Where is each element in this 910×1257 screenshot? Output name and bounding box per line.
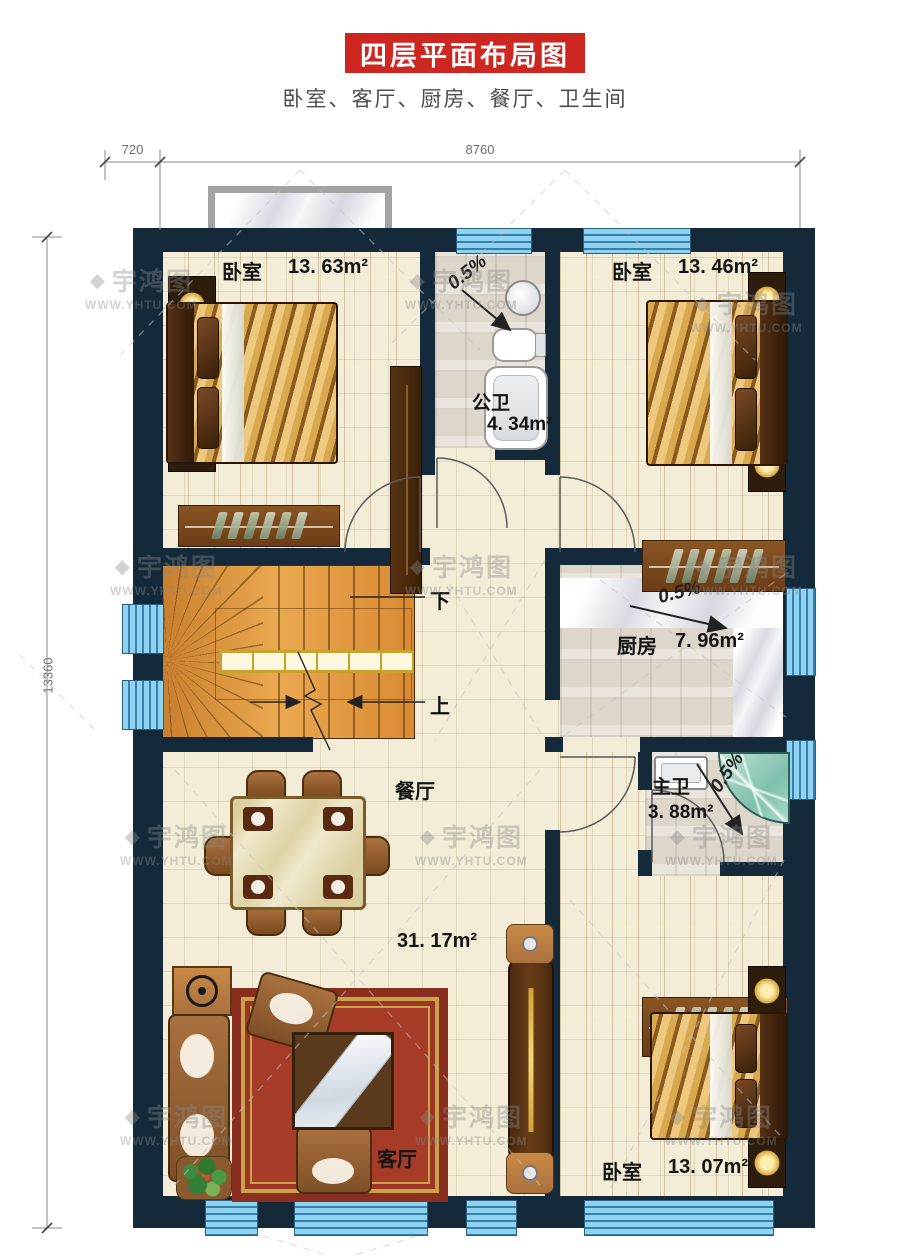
annotation-overlay: [0, 0, 910, 1257]
label-kitchen: 厨房 7. 96m²: [617, 630, 744, 659]
label-bedroom-top-left: 卧室 13. 63m²: [222, 256, 368, 285]
room-name: 公卫: [472, 388, 510, 415]
fold-dash-lines: [20, 170, 790, 1256]
stair-up-label: 上: [430, 690, 450, 719]
room-area: 3. 88m²: [648, 802, 713, 824]
room-name: 厨房: [617, 630, 657, 659]
room-area: 7. 96m²: [675, 630, 744, 659]
label-bedroom-bottom-right: 卧室 13. 07m²: [602, 1156, 748, 1185]
room-area: 4. 34m²: [487, 414, 552, 436]
room-area: 13. 07m²: [668, 1156, 748, 1185]
dimension-ticks: [42, 157, 805, 1233]
room-area: 31. 17m²: [397, 930, 477, 953]
slope-arrows: [462, 290, 742, 834]
room-name: 餐厅: [395, 775, 435, 804]
room-area: 13. 46m²: [678, 256, 758, 285]
label-living: 客厅: [377, 1143, 417, 1172]
room-area: 13. 63m²: [288, 256, 368, 285]
room-name: 卧室: [602, 1156, 642, 1185]
label-public-bath: 公卫: [472, 388, 510, 415]
room-name: 主卫: [652, 772, 690, 799]
label-dining: 餐厅: [395, 775, 435, 804]
stair-down-label: 下: [430, 585, 450, 614]
room-name: 客厅: [377, 1143, 417, 1172]
floor-plan-page: 四层平面布局图 卧室、客厅、厨房、餐厅、卫生间 720 8760 13360: [0, 0, 910, 1257]
room-name: 卧室: [612, 256, 652, 285]
label-master-bath-area: 3. 88m²: [648, 802, 713, 824]
label-living-area: 31. 17m²: [397, 930, 477, 953]
dimension-lines: [32, 150, 800, 1228]
label-public-bath-area: 4. 34m²: [487, 414, 552, 436]
label-bedroom-top-right: 卧室 13. 46m²: [612, 256, 758, 285]
label-master-bath: 主卫: [652, 772, 690, 799]
stair-direction-marks: [250, 597, 425, 750]
room-name: 卧室: [222, 256, 262, 285]
